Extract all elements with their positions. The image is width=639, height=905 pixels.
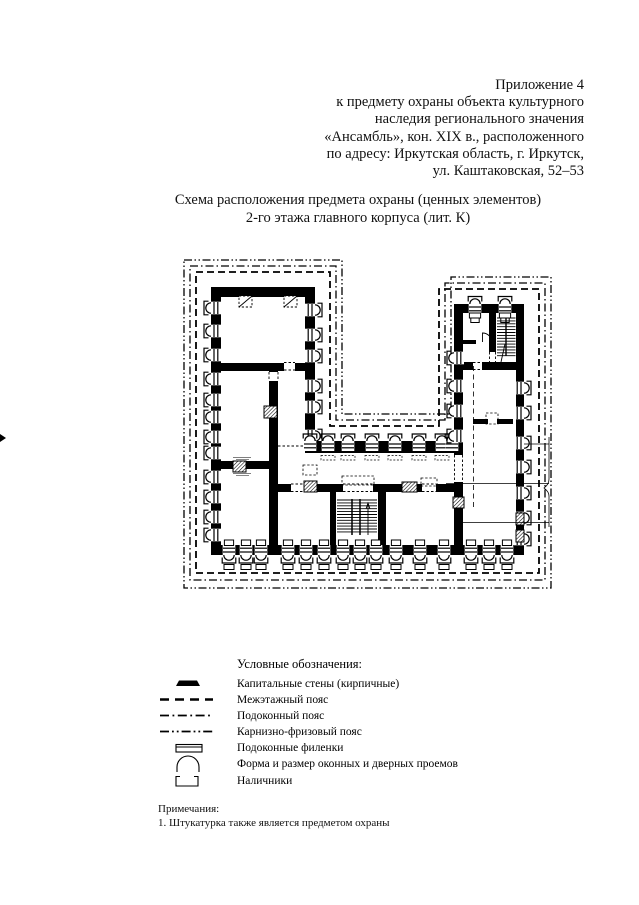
svg-text:Подоконный пояс: Подоконный пояс <box>237 710 324 722</box>
svg-text:Карнизно-фризовый пояс: Карнизно-фризовый пояс <box>237 726 362 738</box>
svg-text:Подоконные филенки: Подоконные филенки <box>237 742 343 754</box>
svg-text:Межэтажный пояс: Межэтажный пояс <box>237 694 328 706</box>
svg-text:Условные обозначения:: Условные обозначения: <box>237 657 362 671</box>
svg-text:Форма и размер оконных и дверн: Форма и размер оконных и дверных проемов <box>237 758 459 770</box>
svg-text:Капитальные стены (кирпичные): Капитальные стены (кирпичные) <box>237 678 399 690</box>
svg-text:Наличники: Наличники <box>237 775 292 787</box>
